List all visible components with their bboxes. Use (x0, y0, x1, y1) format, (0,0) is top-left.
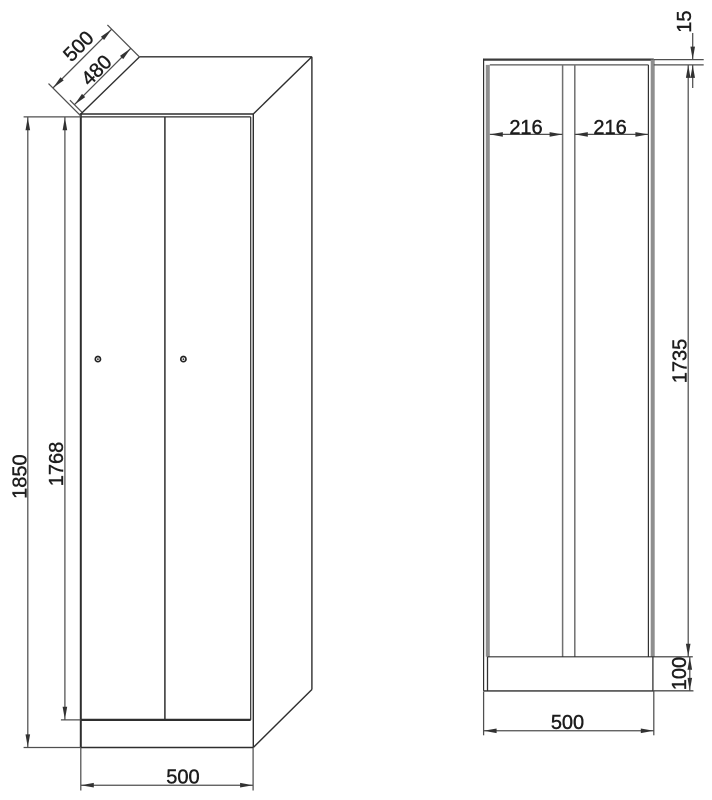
svg-text:1850: 1850 (10, 454, 32, 499)
svg-text:1768: 1768 (46, 442, 68, 487)
svg-text:100: 100 (669, 657, 691, 690)
svg-text:216: 216 (593, 117, 626, 139)
svg-text:1735: 1735 (669, 339, 691, 384)
svg-text:500: 500 (166, 766, 199, 788)
svg-text:500: 500 (551, 712, 584, 734)
svg-text:216: 216 (509, 117, 542, 139)
svg-text:15: 15 (674, 10, 696, 32)
